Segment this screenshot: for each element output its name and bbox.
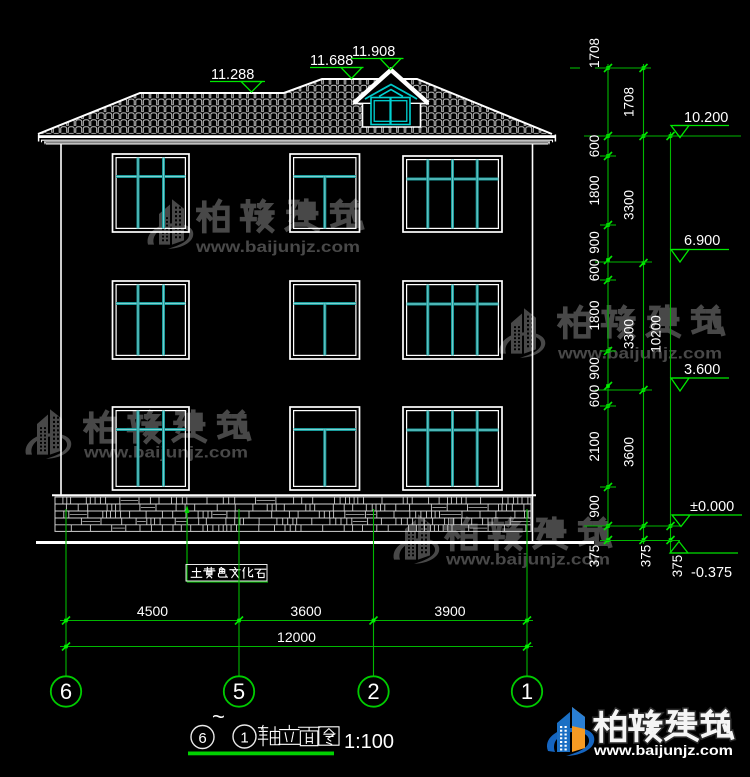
svg-text:www.baijunjz.com: www.baijunjz.com bbox=[593, 743, 733, 758]
svg-text:www.baijunjz.com: www.baijunjz.com bbox=[557, 346, 722, 363]
svg-text:1708: 1708 bbox=[587, 38, 602, 68]
svg-text:1800: 1800 bbox=[587, 175, 602, 205]
svg-text:900: 900 bbox=[587, 231, 602, 254]
svg-text:-0.375: -0.375 bbox=[691, 565, 732, 581]
svg-text:3600: 3600 bbox=[290, 603, 321, 619]
svg-text:11.288: 11.288 bbox=[211, 67, 254, 83]
svg-text:1: 1 bbox=[521, 679, 533, 704]
svg-text:10.200: 10.200 bbox=[684, 110, 728, 126]
svg-text:1: 1 bbox=[240, 730, 248, 747]
svg-text:12000: 12000 bbox=[277, 629, 316, 645]
svg-text:1708: 1708 bbox=[622, 87, 637, 117]
svg-text:900: 900 bbox=[587, 495, 602, 518]
svg-text:6: 6 bbox=[60, 679, 72, 704]
svg-text:5: 5 bbox=[233, 679, 245, 704]
svg-text:1800: 1800 bbox=[587, 300, 602, 330]
svg-text:3600: 3600 bbox=[622, 437, 637, 467]
svg-text:10200: 10200 bbox=[649, 315, 664, 353]
svg-text:3.600: 3.600 bbox=[684, 362, 720, 378]
svg-text:3300: 3300 bbox=[622, 319, 637, 349]
svg-text:6.900: 6.900 bbox=[684, 233, 720, 249]
svg-text:3900: 3900 bbox=[434, 603, 465, 619]
svg-text:600: 600 bbox=[587, 135, 602, 158]
svg-text:11.908: 11.908 bbox=[352, 44, 395, 60]
svg-text:375: 375 bbox=[587, 545, 602, 568]
svg-text:2: 2 bbox=[367, 679, 379, 704]
svg-text:1:100: 1:100 bbox=[344, 731, 394, 753]
svg-text:11.688: 11.688 bbox=[310, 53, 353, 69]
svg-text:900: 900 bbox=[587, 357, 602, 380]
svg-text:www.baijunjz.com: www.baijunjz.com bbox=[195, 239, 360, 256]
svg-text:375: 375 bbox=[670, 555, 685, 578]
svg-text:2100: 2100 bbox=[587, 431, 602, 461]
svg-text:3300: 3300 bbox=[622, 190, 637, 220]
svg-text:600: 600 bbox=[587, 385, 602, 408]
svg-text:375: 375 bbox=[639, 545, 654, 568]
svg-text:www.baijunjz.com: www.baijunjz.com bbox=[83, 445, 248, 462]
svg-text:~: ~ bbox=[212, 704, 225, 729]
svg-text:600: 600 bbox=[587, 259, 602, 282]
svg-text:6: 6 bbox=[198, 730, 206, 747]
svg-text:4500: 4500 bbox=[137, 603, 168, 619]
svg-text:±0.000: ±0.000 bbox=[690, 499, 734, 515]
